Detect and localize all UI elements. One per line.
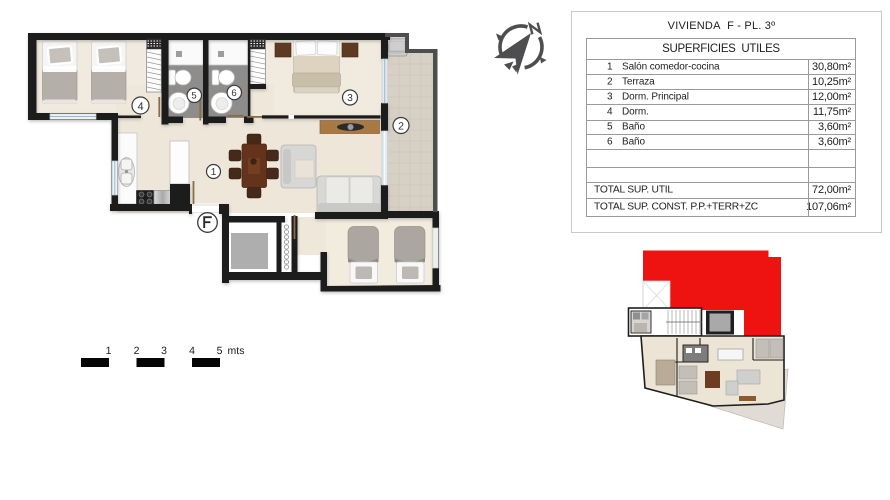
svg-text:6: 6 — [231, 88, 236, 99]
svg-text:3: 3 — [161, 345, 167, 357]
svg-text:2: 2 — [134, 345, 140, 357]
svg-text:5: 5 — [217, 345, 223, 357]
svg-text:mts: mts — [228, 345, 245, 357]
svg-text:5: 5 — [191, 91, 196, 102]
svg-text:4: 4 — [189, 345, 195, 357]
svg-text:3: 3 — [347, 93, 353, 104]
svg-text:2: 2 — [398, 121, 404, 133]
svg-text:4: 4 — [137, 101, 143, 113]
svg-text:1: 1 — [211, 167, 217, 178]
svg-text:1: 1 — [106, 345, 112, 357]
